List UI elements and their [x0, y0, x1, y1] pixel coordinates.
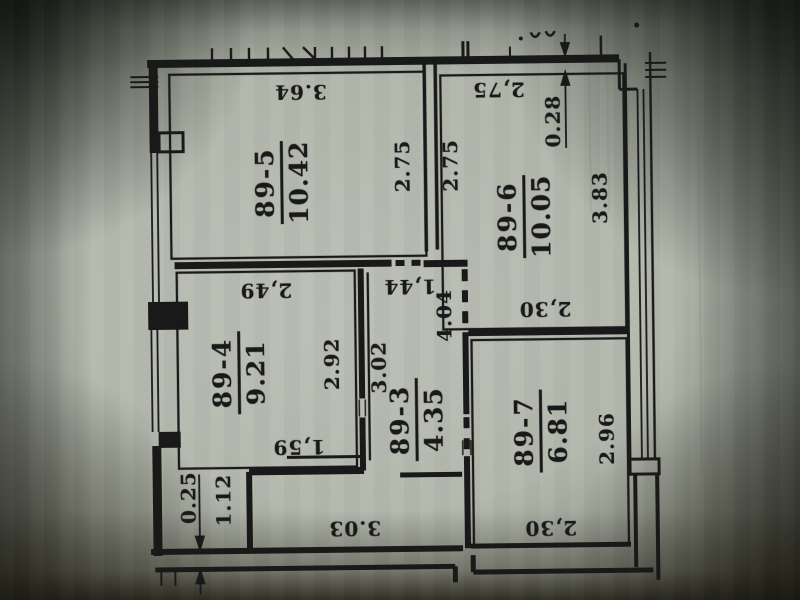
dim-label: 4.04 [432, 289, 457, 342]
dim-label: 2,49 [239, 278, 292, 303]
dim-label: 3.64 [274, 80, 327, 105]
dim-label: 2.92 [319, 337, 344, 390]
dim-label: 2.96 [594, 412, 619, 465]
room-label-89-3: 89-3 4.35 [387, 378, 449, 461]
dim-label: 3.83 [587, 171, 612, 224]
floor-plan-photo: 89-5 10.42 89-6 10.05 89-4 9.21 89-3 4.3… [0, 0, 800, 600]
floor-plan-walls [0, 0, 800, 600]
dim-label: 1,59 [272, 435, 325, 460]
dim-label: 0.25 [176, 471, 201, 524]
room-label-89-7: 89-7 6.81 [511, 390, 573, 473]
dim-label: 2.75 [438, 139, 463, 192]
room-number: 89-7 [511, 390, 543, 473]
room-area: 4.35 [418, 378, 448, 461]
room-label-89-5: 89-5 10.42 [252, 140, 314, 224]
room-area: 10.42 [283, 140, 313, 224]
dim-label: 3.03 [328, 516, 381, 541]
floor-plan-drawing: 89-5 10.42 89-6 10.05 89-4 9.21 89-3 4.3… [0, 0, 800, 600]
room-area: 6.81 [542, 390, 572, 473]
wall-piers [148, 302, 190, 448]
dim-label: 1,44 [383, 275, 436, 300]
room-number: 89-6 [494, 175, 526, 259]
room-label-89-4: 89-4 9.21 [209, 331, 271, 414]
room-number: 89-5 [252, 141, 284, 225]
room-number: 89-4 [209, 332, 241, 415]
room-area: 10.05 [525, 174, 555, 258]
dim-label: 3.02 [366, 341, 391, 394]
room-area: 9.21 [240, 331, 270, 414]
dim-label: 0.28 [541, 95, 566, 148]
dim-label: 2,30 [519, 297, 572, 322]
room-number: 89-3 [387, 379, 419, 462]
cut-off-top-marks [519, 23, 640, 41]
dim-label: 1.12 [211, 474, 236, 527]
dim-label: 2,30 [524, 516, 577, 541]
dim-label: 2,75 [472, 77, 525, 102]
dim-label: 2.75 [390, 139, 415, 192]
room-label-89-6: 89-6 10.05 [494, 174, 556, 258]
